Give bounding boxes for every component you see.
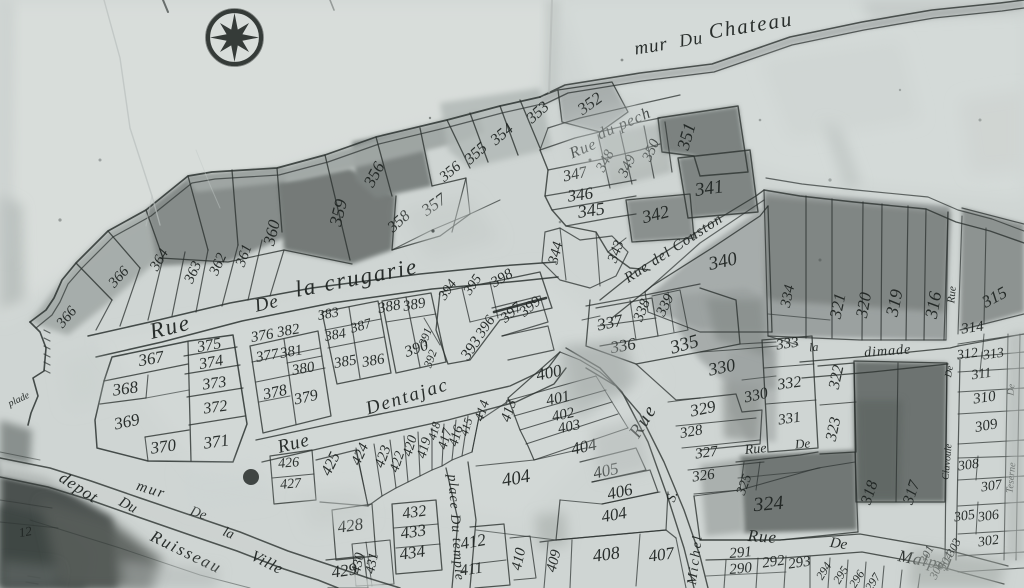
svg-text:Du: Du bbox=[677, 27, 705, 51]
svg-text:372: 372 bbox=[201, 397, 228, 417]
svg-text:368: 368 bbox=[110, 377, 139, 400]
svg-text:341: 341 bbox=[693, 176, 725, 201]
svg-text:370: 370 bbox=[148, 435, 177, 458]
svg-text:la: la bbox=[809, 340, 819, 355]
svg-text:De: De bbox=[943, 364, 956, 379]
svg-text:De: De bbox=[793, 435, 811, 451]
svg-text:332: 332 bbox=[775, 373, 802, 393]
svg-text:311: 311 bbox=[970, 366, 993, 384]
svg-text:Rue: Rue bbox=[945, 286, 959, 305]
svg-text:De: De bbox=[828, 535, 849, 553]
svg-text:324: 324 bbox=[752, 492, 785, 517]
svg-text:373: 373 bbox=[200, 373, 227, 393]
svg-text:326: 326 bbox=[690, 466, 716, 485]
svg-text:427: 427 bbox=[280, 476, 303, 493]
svg-text:302: 302 bbox=[976, 533, 1000, 551]
svg-text:426: 426 bbox=[278, 455, 300, 472]
svg-text:408: 408 bbox=[591, 542, 621, 566]
svg-text:305: 305 bbox=[952, 508, 976, 526]
svg-text:313: 313 bbox=[981, 346, 1005, 364]
svg-text:434: 434 bbox=[398, 541, 426, 563]
svg-text:333: 333 bbox=[774, 335, 799, 354]
svg-text:433: 433 bbox=[399, 520, 427, 542]
svg-text:307: 307 bbox=[979, 478, 1004, 496]
svg-text:292: 292 bbox=[761, 552, 786, 571]
svg-text:312: 312 bbox=[955, 346, 979, 364]
svg-text:293: 293 bbox=[787, 554, 812, 573]
svg-text:345: 345 bbox=[575, 198, 606, 222]
svg-text:407: 407 bbox=[647, 543, 676, 566]
svg-text:411: 411 bbox=[459, 560, 484, 580]
svg-text:306: 306 bbox=[976, 508, 1000, 526]
svg-text:310: 310 bbox=[971, 388, 997, 407]
svg-text:Rue: Rue bbox=[743, 441, 767, 458]
svg-text:308: 308 bbox=[956, 457, 980, 475]
svg-text:371: 371 bbox=[201, 430, 230, 453]
svg-text:290: 290 bbox=[729, 560, 753, 578]
svg-text:314: 314 bbox=[959, 318, 985, 337]
svg-text:331: 331 bbox=[776, 410, 801, 429]
